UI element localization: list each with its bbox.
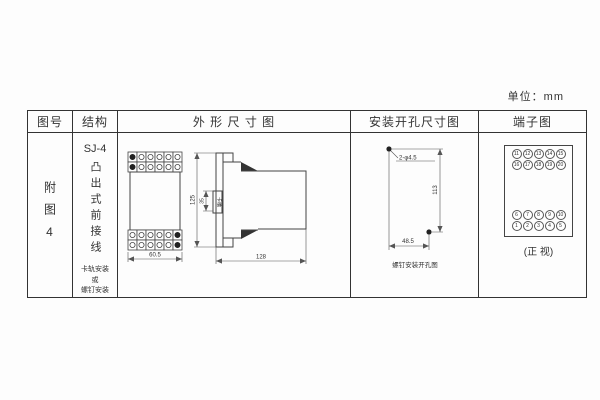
terminal-1: 1 (512, 221, 522, 231)
mount-hole-bottom (426, 229, 431, 234)
header-outline: 外 形 尺 寸 图 (118, 111, 351, 133)
header-structure: 结构 (73, 111, 118, 133)
terminal-19: 19 (545, 160, 555, 170)
dim-rail: 35 (200, 198, 206, 204)
terminal-caption: (正 视) (504, 243, 573, 258)
mount-hole-top (386, 146, 391, 151)
terminal-9: 9 (545, 210, 555, 220)
terminal-box: 11121314151617181920 67891012345 (504, 145, 573, 237)
figure-no-text: 附图4 (42, 181, 59, 249)
outline-drawing: 60.5 卡槽 35 (118, 133, 351, 297)
dim-depth: 128 (256, 255, 267, 261)
dim-front-width: 60.5 (149, 253, 161, 259)
terminal-15: 15 (556, 149, 566, 159)
datasheet-page: 单位：mm 图号 结构 外 形 尺 寸 图 安装开孔尺寸图 端子图 附图4 SJ… (0, 0, 600, 400)
structure-cell: SJ-4 凸出式前接线 卡轨安装 或 螺钉安装 (73, 133, 118, 297)
mounting-drawing: 2-φ4.5 113 48.5 螺钉安装开孔图 (351, 133, 479, 297)
figure-no-cell: 附图4 (28, 133, 73, 297)
front-bottom-terminal-strip (128, 230, 182, 250)
terminal-10: 10 (556, 210, 566, 220)
dim-hole-height: 113 (433, 185, 439, 195)
structure-type-text: 凸出式前接线 (87, 161, 103, 257)
front-view: 60.5 (128, 152, 182, 262)
header-terminal: 端子图 (479, 111, 586, 133)
terminal-diagram-cell: 11121314151617181920 67891012345 (正 视) (479, 133, 586, 297)
terminal-17: 17 (523, 160, 533, 170)
unit-label: 单位：mm (508, 88, 564, 104)
terminal-14: 14 (545, 149, 555, 159)
terminal-12: 12 (523, 149, 533, 159)
mount-note-text: 卡轨安装 或 螺钉安装 (81, 265, 109, 297)
mounting-caption: 螺钉安装开孔图 (392, 260, 438, 269)
terminal-3: 3 (534, 221, 544, 231)
rail-slot-label: 卡槽 (216, 197, 223, 207)
front-top-terminal-strip (128, 152, 182, 172)
terminal-11: 11 (512, 149, 522, 159)
terminal-7: 7 (523, 210, 533, 220)
terminal-bottom-group: 67891012345 (505, 210, 572, 231)
dimension-table: 图号 结构 外 形 尺 寸 图 安装开孔尺寸图 端子图 附图4 SJ-4 凸出式… (27, 110, 587, 298)
header-mounting: 安装开孔尺寸图 (351, 111, 479, 133)
model-label: SJ-4 (84, 143, 107, 155)
terminal-20: 20 (556, 160, 566, 170)
terminal-5: 5 (556, 221, 566, 231)
outline-drawing-cell: 60.5 卡槽 35 (118, 133, 351, 297)
terminal-top-group: 11121314151617181920 (505, 149, 572, 170)
terminal-8: 8 (534, 210, 544, 220)
terminal-6: 6 (512, 210, 522, 220)
dim-hole-width: 48.5 (402, 239, 414, 245)
front-body (130, 172, 180, 230)
mounting-drawing-cell: 2-φ4.5 113 48.5 螺钉安装开孔图 (351, 133, 479, 297)
holes-label: 2-φ4.5 (399, 156, 417, 162)
side-view: 卡槽 35 125 128 (191, 153, 307, 264)
terminal-18: 18 (534, 160, 544, 170)
terminal-13: 13 (534, 149, 544, 159)
terminal-16: 16 (512, 160, 522, 170)
terminal-4: 4 (545, 221, 555, 231)
terminal-2: 2 (523, 221, 533, 231)
dim-height: 125 (191, 194, 197, 205)
header-figure-no: 图号 (28, 111, 73, 133)
